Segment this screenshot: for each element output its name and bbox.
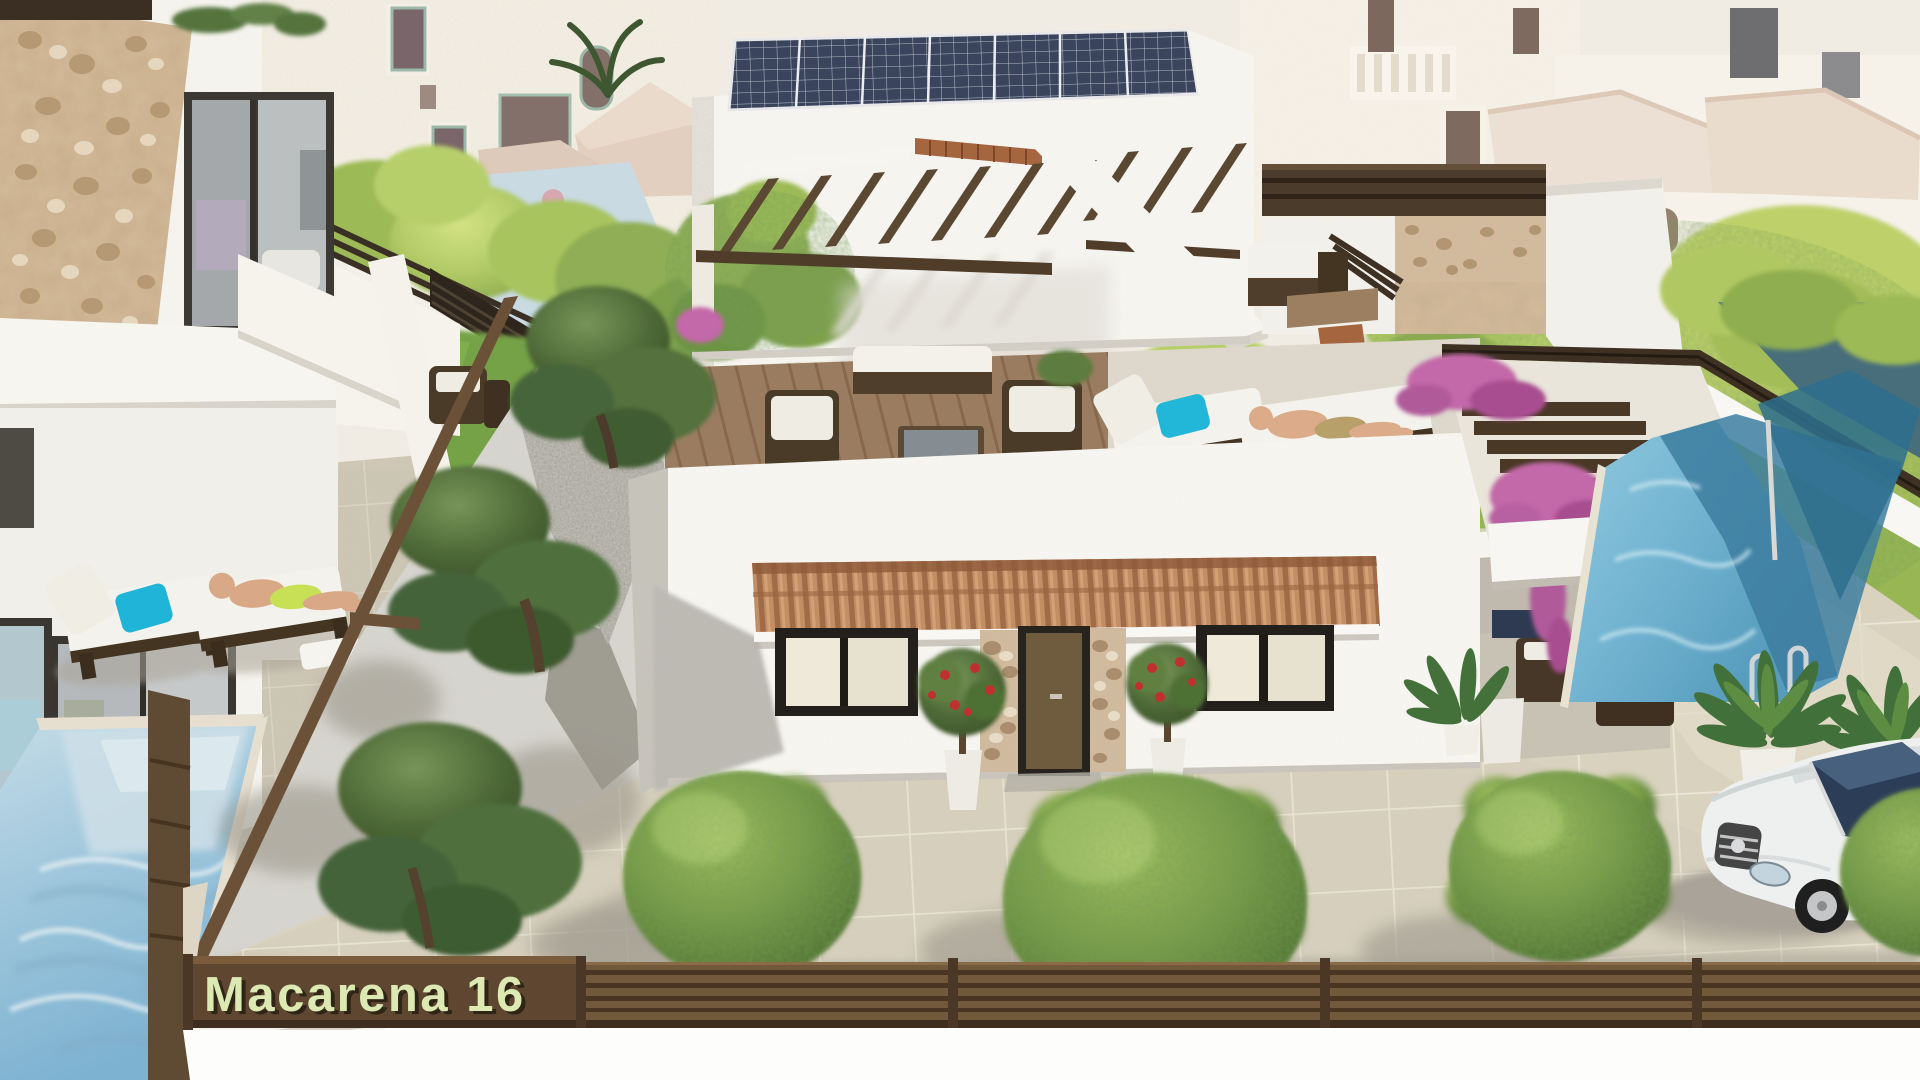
svg-text:Macarena 16: Macarena 16	[204, 968, 526, 1022]
